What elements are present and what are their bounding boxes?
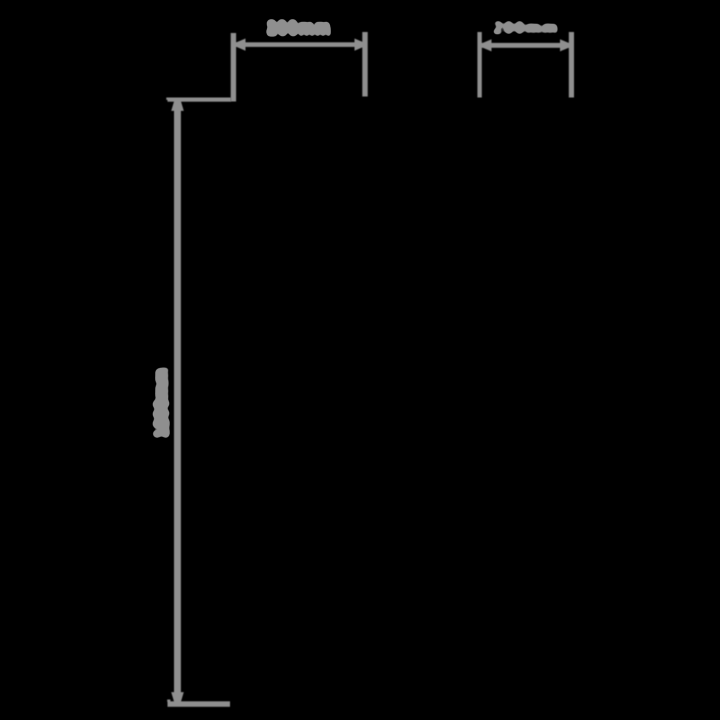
svg-text:200mm: 200mm [267,20,331,40]
svg-text:1200mm: 1200mm [149,368,169,438]
svg-text:200mm: 200mm [493,17,559,37]
